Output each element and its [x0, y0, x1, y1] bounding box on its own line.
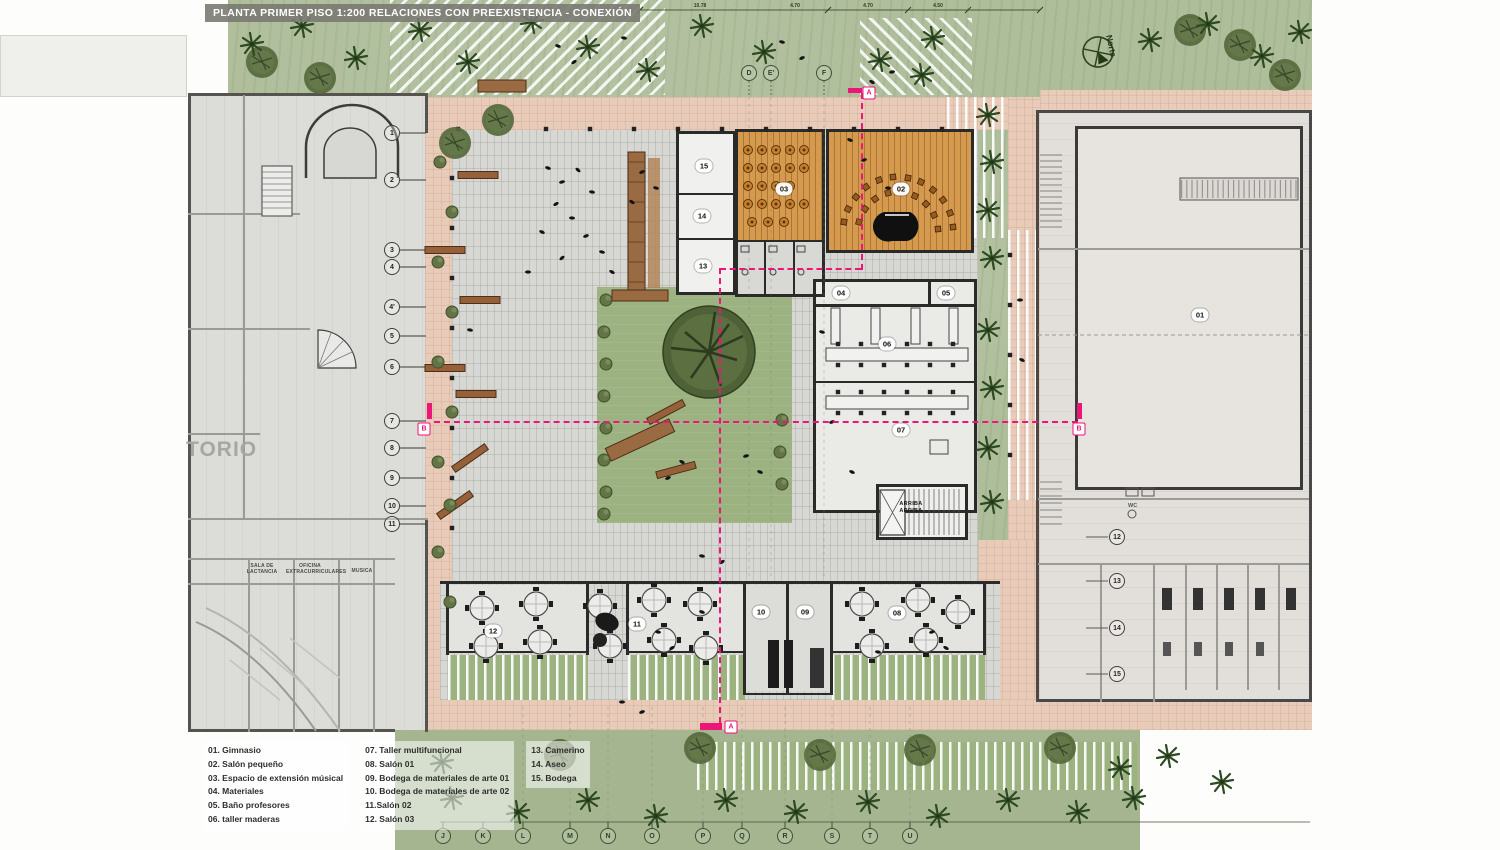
pergola-bed-11: [628, 655, 745, 700]
section-label-b-left: B: [418, 423, 431, 436]
section-marker-b-left: [427, 403, 432, 419]
legend-item: 02. Salón pequeño: [208, 758, 343, 772]
room-09-fill: [789, 585, 830, 691]
legend-column-3: 13. Camerino14. Aseo15. Bodega: [526, 741, 589, 788]
room-03-music: [737, 132, 823, 240]
section-line-a-jog: [720, 268, 861, 270]
rooms-04-07-block: [815, 281, 975, 511]
room-10-fill: [746, 585, 786, 691]
legend-item: 01. Gimnasio: [208, 744, 343, 758]
section-line-a-lower: [719, 268, 721, 723]
legend-column-1: 01. Gimnasio02. Salón pequeño03. Espacio…: [203, 741, 348, 830]
page-title: PLANTA PRIMER PISO 1:200 RELACIONES CON …: [205, 4, 640, 22]
pergola-bed-bottom: [697, 742, 1137, 790]
legend-item: 07. Taller multifuncional: [365, 744, 509, 758]
legend-item: 14. Aseo: [531, 758, 584, 772]
walkway-right-top: [1040, 90, 1312, 112]
legend-item: 09. Bodega de materiales de arte 01: [365, 772, 509, 786]
left-existing-building: [188, 95, 428, 730]
section-label-a-bottom: A: [725, 721, 738, 734]
legend-item: 04. Materiales: [208, 785, 343, 799]
room-11-fill: [629, 585, 743, 651]
section-line-b: [434, 421, 1078, 423]
room-02-salon: [828, 132, 972, 250]
section-marker-a-top: [848, 88, 862, 93]
legend: 01. Gimnasio02. Salón pequeño03. Espacio…: [203, 741, 590, 830]
legend-item: 03. Espacio de extensión músical: [208, 772, 343, 786]
legend-item: 05. Baño profesores: [208, 799, 343, 813]
wc-label: WC: [1128, 503, 1137, 509]
section-marker-a-bottom: [700, 723, 722, 730]
legend-item: 12. Salón 03: [365, 813, 509, 827]
walkway-bottom: [425, 700, 1145, 730]
pergola-hatch-topright: [860, 18, 972, 95]
section-label-a-top: A: [863, 87, 876, 100]
section-label-b-right: B: [1073, 423, 1086, 436]
legend-item: 10. Bodega de materiales de arte 02: [365, 785, 509, 799]
adjacent-structure: [0, 35, 187, 97]
courtyard-green: [597, 287, 792, 523]
legend-column-2: 07. Taller multifuncional08. Salón 0109.…: [360, 741, 514, 830]
auditorium-label: TORIO: [186, 438, 257, 462]
section-marker-b-right: [1077, 403, 1082, 419]
stair-label-1: ARRIBA: [880, 501, 942, 507]
room-08-fill: [833, 585, 983, 651]
legend-item: 11.Salón 02: [365, 799, 509, 813]
legend-item: 08. Salón 01: [365, 758, 509, 772]
pergola-bed-12: [448, 655, 588, 700]
floor-plan-sheet: A A B B 12344'567891011 DE'F JKLMNOPQRST…: [0, 0, 1500, 850]
stair-label-2: ARRIBA: [880, 508, 942, 514]
legend-item: 15. Bodega: [531, 772, 584, 786]
room-12-fill: [449, 585, 586, 651]
legend-item: 06. taller maderas: [208, 813, 343, 827]
room-01-hall: [1075, 128, 1303, 488]
pergola-bed-08: [832, 655, 985, 700]
section-line-a-upper: [861, 93, 863, 270]
colonnade-hatch: [1008, 230, 1038, 500]
legend-item: 13. Camerino: [531, 744, 584, 758]
